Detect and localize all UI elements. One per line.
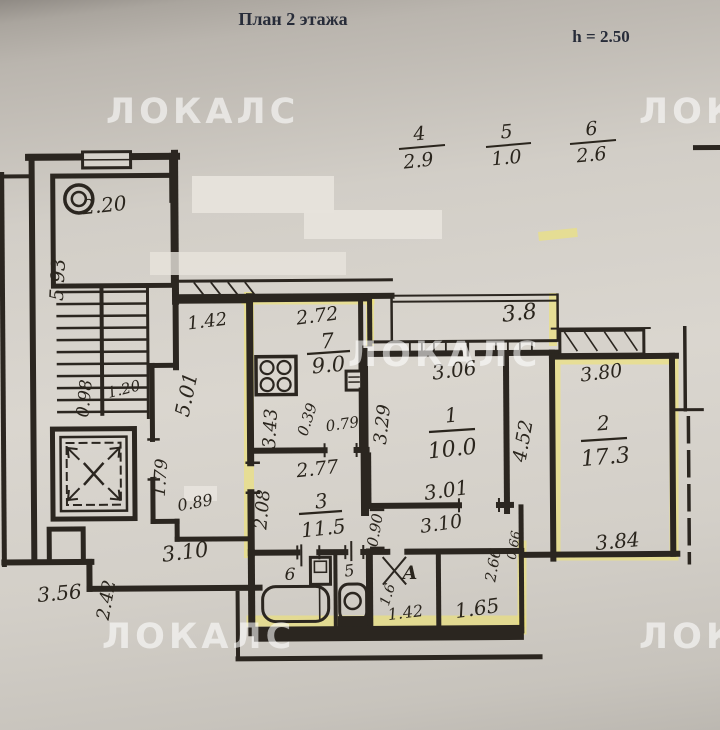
room3-area: 11.5 [300, 514, 347, 543]
watermark-top-left: ЛОКАЛС [106, 92, 299, 132]
height-note: h = 2.50 [572, 27, 629, 46]
legend-fraction-4: 4 2.9 [399, 122, 445, 173]
dim-vestibule: 1.42 [186, 309, 228, 335]
dim-room2-height: 4.52 [508, 418, 537, 464]
stove-icon [256, 356, 296, 394]
room3-label: 3 11.5 [299, 488, 347, 542]
room1-label: 1 10.0 [427, 402, 478, 464]
watermark-bottom-right: ЛОКАЛС [639, 617, 720, 657]
dim-hall-left: 2.08 [250, 489, 275, 532]
dim-lift-lobby: 1.79 [150, 458, 173, 497]
room-bath-label: 6 [285, 565, 296, 585]
legend-fraction-5: 5 1.0 [486, 121, 531, 171]
legend-6-num: 6 [584, 118, 598, 141]
dim-lift-side: 1.20 [105, 376, 142, 402]
dim-outer-step: 2.42 [93, 578, 121, 622]
dim-balcony: 3.8 [501, 299, 538, 328]
dim-kitchen-top: 2.72 [294, 303, 340, 330]
room2-number: 2 [595, 411, 611, 436]
dim-kitchen-nook: 0.39 [294, 400, 322, 438]
room-wc-label: 5 [343, 560, 356, 580]
dim-stairs: 5.93 [46, 258, 70, 301]
room-storage-label: А [400, 562, 417, 584]
room-kitchen-label: 7 9.0 [307, 328, 350, 378]
room1-area: 10.0 [427, 435, 478, 465]
legend-fraction-6: 6 2.6 [570, 118, 616, 168]
legend-5-den: 1.0 [490, 146, 522, 171]
dim-chute-room: 2.20 [80, 191, 128, 220]
room-kitchen-number: 7 [320, 328, 336, 353]
room2-label: 2 17.3 [580, 411, 631, 473]
room1-number: 1 [444, 402, 459, 427]
room3-number: 3 [314, 488, 329, 513]
dim-room2-top: 3.80 [579, 360, 624, 387]
elevator-icon [52, 429, 135, 520]
dim-lobby-width: 3.10 [160, 537, 209, 567]
legend-fractions: 4 2.9 5 1.0 6 2.6 [399, 118, 616, 174]
legend-4-num: 4 [411, 122, 426, 145]
dim-hall-top: 2.77 [294, 456, 340, 483]
dim-corridor-bottom: 3.10 [419, 510, 464, 538]
toilet-icon [338, 584, 368, 628]
watermark-center: ЛОКАЛС [348, 335, 541, 375]
dim-corridor-length: 5.01 [170, 370, 203, 419]
room-kitchen-area: 9.0 [311, 352, 346, 379]
room2-window-icon [552, 328, 650, 355]
legend-5-num: 5 [499, 121, 513, 144]
legend-6-den: 2.6 [574, 143, 607, 168]
dim-hall-door: 0.90 [363, 512, 387, 548]
dim-lobby-small: 0.89 [176, 490, 214, 515]
page-title: План 2 этажа [238, 9, 347, 29]
room2-area: 17.3 [580, 443, 631, 472]
dim-room1-bottom: 3.01 [422, 475, 469, 505]
legend-4-den: 2.9 [401, 149, 434, 174]
dim-outer-left: 3.56 [36, 579, 83, 607]
dim-kitchen-left: 3.43 [259, 408, 282, 449]
watermark-top-right: ЛОКАЛС [639, 92, 720, 132]
stairs-icon [57, 287, 148, 418]
dim-lift-front: 0.98 [73, 378, 97, 418]
dim-kitchen-door: 0.79 [325, 413, 361, 436]
stair-window-icon [83, 152, 131, 168]
watermark-bottom-left: ЛОКАЛС [102, 617, 295, 657]
sink-icon [310, 557, 330, 584]
floorplan-photo: 2.20 5.93 1.42 0.98 1.20 5.01 1.79 0.89 … [0, 0, 720, 730]
dim-kitchen-right: 3.29 [370, 403, 395, 445]
floorplan-drawing: 2.20 5.93 1.42 0.98 1.20 5.01 1.79 0.89 … [0, 0, 720, 730]
dim-room2-bottom: 3.84 [594, 527, 640, 555]
